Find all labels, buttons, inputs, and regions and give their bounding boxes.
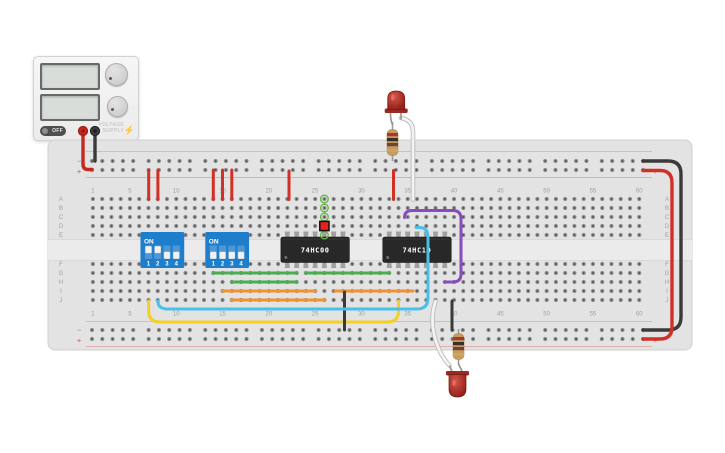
breadboard-hole-core: [527, 234, 529, 236]
breadboard-hole-core: [175, 272, 177, 274]
breadboard-hole-core: [361, 216, 363, 218]
breadboard-hole-core: [575, 160, 577, 162]
rail-symbol: −: [77, 328, 81, 335]
breadboard-hole-core: [629, 216, 631, 218]
breadboard-hole-core: [324, 198, 326, 200]
dip-slider-4[interactable]: [238, 252, 244, 259]
breadboard-hole-core: [261, 338, 263, 340]
breadboard-hole-core: [249, 263, 251, 265]
breadboard-hole-core: [564, 225, 566, 227]
breadboard-hole-core: [565, 169, 567, 171]
breadboard-hole-core: [101, 329, 103, 331]
breadboard-hole-core: [101, 198, 103, 200]
breadboard-hole-core: [296, 207, 298, 209]
breadboard-hole-core: [574, 290, 576, 292]
breadboard-hole-core: [407, 207, 409, 209]
breadboard-hole-core: [499, 207, 501, 209]
row-label: D: [665, 224, 670, 230]
breadboard-hole-core: [277, 198, 279, 200]
breadboard-hole-core: [620, 234, 622, 236]
breadboard-hole-core: [203, 272, 205, 274]
breadboard-hole-core: [472, 290, 474, 292]
breadboard-hole-core: [204, 160, 206, 162]
breadboard-hole-core: [611, 272, 613, 274]
dip-slider-1[interactable]: [145, 246, 151, 253]
breadboard-hole-core: [132, 160, 134, 162]
breadboard-hole-core: [544, 169, 546, 171]
breadboard-hole-core: [431, 338, 433, 340]
breadboard-hole-core: [215, 329, 217, 331]
breadboard-hole-core: [638, 225, 640, 227]
breadboard-hole-core: [203, 299, 205, 301]
breadboard-hole-core: [564, 207, 566, 209]
breadboard-hole-core: [342, 198, 344, 200]
breadboard-hole-core: [407, 216, 409, 218]
breadboard-hole-core: [282, 329, 284, 331]
dip-slider-2[interactable]: [155, 246, 161, 253]
breadboard-hole-core: [246, 169, 248, 171]
breadboard-hole-core: [453, 272, 455, 274]
breadboard-hole-core: [101, 290, 103, 292]
breadboard-hole-core: [204, 169, 206, 171]
ic-pin: [405, 263, 410, 269]
row-label: G: [59, 271, 64, 277]
breadboard-hole-core: [349, 329, 351, 331]
breadboard-hole-core: [622, 169, 624, 171]
breadboard-hole-core: [166, 290, 168, 292]
breadboard-hole-core: [203, 225, 205, 227]
breadboard-hole-core: [235, 338, 237, 340]
breadboard-hole-core: [246, 329, 248, 331]
breadboard-hole-core: [388, 216, 390, 218]
breadboard-hole-core: [629, 290, 631, 292]
breadboard-hole-core: [92, 290, 94, 292]
breadboard-hole-core: [324, 290, 326, 292]
breadboard-hole-core: [194, 207, 196, 209]
breadboard-hole-core: [138, 216, 140, 218]
breadboard-hole-core: [441, 329, 443, 331]
breadboard-hole-core: [629, 198, 631, 200]
breadboard-hole-core: [379, 207, 381, 209]
breadboard-hole-core: [574, 299, 576, 301]
breadboard-hole-core: [601, 299, 603, 301]
ic-pin: [340, 263, 345, 269]
breadboard-hole-core: [583, 290, 585, 292]
breadboard-hole-core: [629, 263, 631, 265]
breadboard-hole-core: [453, 207, 455, 209]
breadboard-hole-core: [342, 216, 344, 218]
breadboard-hole-core: [314, 216, 316, 218]
breadboard-hole-core: [462, 216, 464, 218]
breadboard-hole-core: [175, 198, 177, 200]
resistor-band: [453, 337, 464, 340]
breadboard-hole-core: [416, 272, 418, 274]
breadboard-hole-core: [546, 234, 548, 236]
breadboard-hole-core: [444, 216, 446, 218]
breadboard-hole-core: [592, 198, 594, 200]
breadboard-hole-core: [314, 281, 316, 283]
breadboard-hole-core: [564, 216, 566, 218]
breadboard-hole-core: [508, 338, 510, 340]
breadboard-hole-core: [453, 198, 455, 200]
breadboard-hole-core: [490, 263, 492, 265]
breadboard-hole-core: [361, 281, 363, 283]
breadboard-hole-core: [328, 338, 330, 340]
breadboard-hole-core: [453, 234, 455, 236]
breadboard-hole-core: [111, 216, 113, 218]
breadboard-hole-core: [405, 169, 407, 171]
breadboard-hole-core: [314, 198, 316, 200]
breadboard-hole-core: [462, 281, 464, 283]
breadboard-hole-core: [120, 299, 122, 301]
breadboard-hole-core: [519, 338, 521, 340]
ic-pin: [285, 263, 290, 269]
breadboard-hole-core: [518, 290, 520, 292]
breadboard-hole-core: [166, 225, 168, 227]
dip-slider-2[interactable]: [220, 252, 226, 259]
terminal-positive-core: [81, 129, 84, 132]
breadboard-hole-core: [601, 329, 603, 331]
led-bottom-body[interactable]: [449, 375, 466, 398]
breadboard-hole-core: [536, 299, 538, 301]
breadboard-hole-core: [333, 281, 335, 283]
breadboard-hole-core: [509, 290, 511, 292]
breadboard-hole-core: [544, 329, 546, 331]
breadboard-hole-core: [351, 198, 353, 200]
breadboard-hole-core: [564, 198, 566, 200]
breadboard-hole-core: [435, 207, 437, 209]
breadboard-hole-core: [194, 234, 196, 236]
breadboard-hole-core: [499, 225, 501, 227]
dip-switch-a[interactable]: ON1234: [140, 232, 184, 268]
breadboard-hole-core: [91, 329, 93, 331]
breadboard-hole-core: [601, 263, 603, 265]
breadboard-hole-core: [518, 225, 520, 227]
breadboard-hole-core: [185, 263, 187, 265]
breadboard-hole-core: [138, 207, 140, 209]
ic-74hc10[interactable]: 74HC10: [383, 232, 452, 269]
breadboard-hole-core: [638, 207, 640, 209]
breadboard-hole-core: [536, 225, 538, 227]
breadboard-hole-core: [112, 329, 114, 331]
breadboard-hole-core: [490, 234, 492, 236]
breadboard-hole-core: [632, 338, 634, 340]
breadboard-hole-core: [546, 299, 548, 301]
breadboard-hole-core: [215, 160, 217, 162]
breadboard-hole-core: [225, 329, 227, 331]
breadboard-hole-core: [282, 338, 284, 340]
breadboard-hole-core: [488, 160, 490, 162]
ic-pin: [322, 263, 327, 269]
breadboard-hole-core: [189, 329, 191, 331]
breadboard-hole-core: [490, 290, 492, 292]
breadboard-hole-core: [620, 281, 622, 283]
column-label: 20: [265, 189, 272, 195]
breadboard-hole-core: [351, 216, 353, 218]
breadboard-hole-core: [168, 338, 170, 340]
breadboard-hole-core: [592, 290, 594, 292]
breadboard-hole-core: [212, 290, 214, 292]
ic-pin: [433, 263, 438, 269]
breadboard-hole-core: [481, 299, 483, 301]
breadboard-hole-core: [452, 169, 454, 171]
breadboard-hole-core: [583, 263, 585, 265]
breadboard-hole-core: [527, 281, 529, 283]
breadboard-hole-core: [592, 234, 594, 236]
breadboard-hole-core: [519, 160, 521, 162]
breadboard-hole-core: [374, 169, 376, 171]
dip-slider-3[interactable]: [164, 252, 170, 259]
breadboard-hole-core: [261, 160, 263, 162]
breadboard-hole-core: [509, 216, 511, 218]
breadboard-hole-core: [92, 216, 94, 218]
breadboard-hole-core: [555, 329, 557, 331]
breadboard-hole-core: [592, 225, 594, 227]
breadboard-hole-core: [620, 290, 622, 292]
breadboard-hole-core: [370, 234, 372, 236]
breadboard-hole-core: [509, 225, 511, 227]
breadboard-hole-core: [481, 272, 483, 274]
breadboard-hole-core: [425, 225, 427, 227]
breadboard-hole-core: [632, 169, 634, 171]
breadboard-hole-core: [611, 338, 613, 340]
breadboard-hole-core: [92, 225, 94, 227]
breadboard-hole-core: [481, 263, 483, 265]
breadboard-hole-core: [416, 207, 418, 209]
breadboard-hole-core: [498, 338, 500, 340]
breadboard-hole-core: [601, 216, 603, 218]
breadboard-hole-core: [405, 160, 407, 162]
breadboard-hole-core: [240, 198, 242, 200]
column-label: 20: [265, 312, 272, 318]
breadboard-hole-core: [555, 216, 557, 218]
breadboard-hole-core: [277, 234, 279, 236]
breadboard-hole-core: [351, 299, 353, 301]
breadboard-hole-core: [370, 198, 372, 200]
ic-74hc00[interactable]: 74HC00: [281, 232, 350, 269]
hovered-hole[interactable]: [320, 221, 329, 230]
breadboard-hole-core: [361, 263, 363, 265]
breadboard-hole-core: [509, 234, 511, 236]
breadboard-hole-core: [185, 290, 187, 292]
breadboard-hole-core: [555, 169, 557, 171]
breadboard-hole-core: [527, 225, 529, 227]
breadboard-hole-core: [166, 207, 168, 209]
breadboard-hole-core: [620, 263, 622, 265]
breadboard-hole-core: [472, 281, 474, 283]
breadboard-hole-core: [351, 234, 353, 236]
breadboard-hole-core: [179, 329, 181, 331]
dip-slider-1[interactable]: [210, 252, 216, 259]
breadboard-hole-core: [222, 281, 224, 283]
breadboard-hole-core: [425, 216, 427, 218]
column-label: 40: [451, 189, 458, 195]
row-label: A: [59, 197, 63, 203]
breadboard-hole-core: [342, 281, 344, 283]
led-bottom[interactable]: [446, 364, 469, 397]
breadboard-hole-core: [374, 338, 376, 340]
breadboard-hole-core: [194, 216, 196, 218]
breadboard-hole-core: [240, 216, 242, 218]
breadboard-hole-core: [138, 198, 140, 200]
breadboard-hole-core: [305, 225, 307, 227]
breadboard-hole-core: [111, 198, 113, 200]
breadboard-hole-core: [472, 160, 474, 162]
resistor-band: [453, 342, 464, 345]
breadboard-hole-core: [462, 198, 464, 200]
breadboard-hole-core: [271, 329, 273, 331]
breadboard-hole-core: [490, 272, 492, 274]
breadboard-hole-core: [416, 329, 418, 331]
breadboard-hole-core: [92, 299, 94, 301]
dip-slider-4[interactable]: [173, 252, 179, 259]
breadboard-hole-core: [444, 198, 446, 200]
breadboard-hole-core: [132, 329, 134, 331]
breadboard-hole-core: [586, 160, 588, 162]
breadboard-hole-core: [122, 169, 124, 171]
ic-pin: [294, 232, 299, 238]
breadboard-hole-core: [166, 281, 168, 283]
breadboard-hole-core: [129, 299, 131, 301]
breadboard-hole-core: [148, 216, 150, 218]
breadboard-hole-core: [536, 198, 538, 200]
breadboard-hole-core: [611, 299, 613, 301]
breadboard-hole-core: [620, 299, 622, 301]
breadboard-hole-core: [611, 198, 613, 200]
breadboard-hole-core: [379, 225, 381, 227]
breadboard-hole-core: [388, 299, 390, 301]
breadboard-hole-core: [601, 272, 603, 274]
breadboard-hole-core: [592, 272, 594, 274]
breadboard-hole-core: [175, 299, 177, 301]
breadboard-scene: −−++−−++11551010151520202525303035354040…: [0, 0, 725, 453]
breadboard-hole-core: [120, 198, 122, 200]
breadboard-hole-core: [111, 263, 113, 265]
breadboard-hole-core: [574, 198, 576, 200]
breadboard-hole-core: [249, 216, 251, 218]
breadboard-hole-core: [499, 263, 501, 265]
breadboard-hole-core: [261, 329, 263, 331]
breadboard-hole-core: [575, 329, 577, 331]
breadboard-hole-core: [175, 281, 177, 283]
breadboard-hole-core: [620, 198, 622, 200]
breadboard-hole-core: [120, 207, 122, 209]
breadboard-hole-core: [101, 263, 103, 265]
breadboard-hole-core: [601, 169, 603, 171]
breadboard-hole-core: [324, 281, 326, 283]
breadboard-hole-core: [292, 329, 294, 331]
column-label: 30: [358, 312, 365, 318]
breadboard-hole-core: [398, 207, 400, 209]
breadboard-hole-core: [498, 160, 500, 162]
breadboard-hole-core: [472, 272, 474, 274]
breadboard-hole-core: [194, 290, 196, 292]
breadboard-hole-core: [138, 272, 140, 274]
breadboard-hole-core: [586, 169, 588, 171]
breadboard-hole-core: [536, 216, 538, 218]
breadboard-hole-core: [157, 207, 159, 209]
breadboard-hole-core: [407, 225, 409, 227]
breadboard-hole-core: [120, 290, 122, 292]
breadboard-hole-core: [370, 207, 372, 209]
breadboard-hole-core: [488, 169, 490, 171]
breadboard-hole-core: [601, 160, 603, 162]
breadboard-hole-core: [431, 169, 433, 171]
breadboard-hole-core: [338, 338, 340, 340]
breadboard-hole-core: [481, 290, 483, 292]
dip-slider-3[interactable]: [229, 252, 235, 259]
breadboard-hole-core: [518, 263, 520, 265]
breadboard-hole-core: [203, 207, 205, 209]
column-label: 50: [543, 312, 550, 318]
breadboard-hole-core: [527, 272, 529, 274]
breadboard-hole-core: [148, 290, 150, 292]
breadboard-hole-core: [138, 299, 140, 301]
breadboard-hole-core: [259, 216, 261, 218]
breadboard-hole-core: [592, 299, 594, 301]
breadboard-hole-core: [92, 234, 94, 236]
row-label: E: [665, 233, 669, 239]
breadboard-hole-core: [555, 234, 557, 236]
breadboard-hole-core: [574, 281, 576, 283]
breadboard-hole-core: [92, 207, 94, 209]
breadboard-hole-core: [120, 281, 122, 283]
breadboard-hole-core: [565, 329, 567, 331]
breadboard-hole-core: [185, 272, 187, 274]
breadboard-hole-core: [175, 225, 177, 227]
breadboard-hole-core: [546, 263, 548, 265]
breadboard-hole-core: [111, 225, 113, 227]
breadboard-hole-core: [601, 198, 603, 200]
ic-pin: [414, 263, 419, 269]
breadboard-hole-core: [374, 329, 376, 331]
breadboard-hole-core: [361, 207, 363, 209]
resistor-bottom[interactable]: [453, 329, 464, 365]
breadboard-hole-core: [249, 207, 251, 209]
breadboard-hole-core: [441, 169, 443, 171]
breadboard-hole-core: [611, 216, 613, 218]
breadboard-hole-core: [148, 272, 150, 274]
breadboard-hole-core: [261, 169, 263, 171]
breadboard-hole-core: [611, 281, 613, 283]
dip-switch-b[interactable]: ON1234: [205, 232, 249, 268]
resistor-band: [387, 133, 398, 136]
breadboard-hole-core: [203, 290, 205, 292]
breadboard-hole-core: [379, 263, 381, 265]
breadboard-hole-core: [370, 281, 372, 283]
breadboard-hole-core: [555, 207, 557, 209]
breadboard-hole-core: [405, 338, 407, 340]
breadboard-hole-core: [462, 160, 464, 162]
breadboard-hole-core: [314, 207, 316, 209]
row-label: C: [59, 215, 64, 221]
breadboard-hole-core: [111, 234, 113, 236]
breadboard-hole-core: [189, 338, 191, 340]
breadboard-hole-core: [620, 225, 622, 227]
led-top-body[interactable]: [388, 91, 405, 110]
column-label: 35: [404, 189, 411, 195]
breadboard-hole-core: [555, 160, 557, 162]
breadboard-hole-core: [129, 290, 131, 292]
breadboard-hole-core: [490, 198, 492, 200]
breadboard-hole-core: [518, 272, 520, 274]
breadboard-hole-core: [349, 338, 351, 340]
breadboard-hole-core: [395, 169, 397, 171]
breadboard-hole-core: [120, 216, 122, 218]
breadboard-hole-core: [444, 225, 446, 227]
breadboard-hole-core: [91, 338, 93, 340]
breadboard-hole-core: [527, 216, 529, 218]
